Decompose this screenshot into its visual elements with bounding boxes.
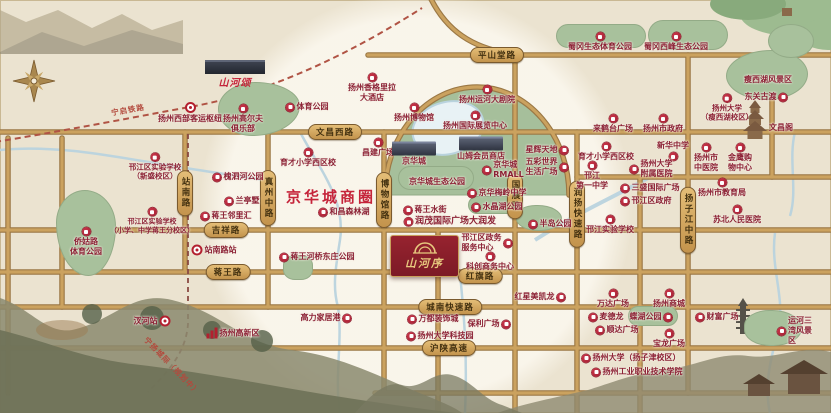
poi-label: 东关古渡 bbox=[745, 92, 777, 102]
metro-station-icon bbox=[160, 316, 171, 327]
poi-item: 昌建广场 bbox=[362, 138, 394, 158]
poi-item: 扬州市 中医院 bbox=[694, 143, 718, 173]
poi-badge-icon bbox=[471, 111, 480, 120]
poi-badge-icon bbox=[529, 220, 538, 229]
poi-badge-icon bbox=[672, 32, 681, 41]
poi-badge-icon bbox=[777, 327, 786, 336]
poi-item: 汊河站 bbox=[134, 316, 171, 327]
poi-label: 蒋王邻里汇 bbox=[212, 211, 252, 221]
poi-badge-icon bbox=[588, 161, 597, 170]
poi-item: 星辉天地 bbox=[526, 145, 569, 155]
poi-item: 蝶湖公园 bbox=[630, 312, 673, 322]
poi-label: 和昌森林湖 bbox=[330, 207, 370, 217]
poi-label: 育才小学西区校 bbox=[578, 152, 634, 162]
poi-badge-icon bbox=[609, 114, 618, 123]
poi-item: 邗江区政务 服务中心 bbox=[462, 233, 513, 253]
poi-badge-icon bbox=[596, 32, 605, 41]
railway-label: 宁启铁路 bbox=[110, 102, 145, 119]
poi-item: 扬州大学科技园 bbox=[407, 331, 474, 341]
sister-project-name: 山河颂 bbox=[203, 74, 267, 89]
poi-label: 汊河站 bbox=[134, 316, 158, 326]
road-label: 平山堂路 bbox=[470, 47, 524, 63]
poi-badge-icon bbox=[630, 165, 639, 174]
poi-item: 保利广场 bbox=[468, 319, 511, 329]
poi-label: 育才小学西区校 bbox=[280, 158, 336, 168]
poi-badge-icon bbox=[502, 320, 511, 329]
poi-item: 水晶湖公园 bbox=[472, 202, 523, 212]
poi-item: 高力家居港 bbox=[301, 313, 352, 323]
poi-badge-icon bbox=[201, 212, 210, 221]
poi-item: 育才小学西区校 bbox=[280, 148, 336, 168]
poi-label: 扬州大学 （瘦西湖校区） bbox=[701, 104, 754, 123]
poi-badge-icon bbox=[582, 354, 591, 363]
poi-badge-icon bbox=[664, 313, 673, 322]
poi-badge-icon bbox=[733, 205, 742, 214]
poi-label: 站南路站 bbox=[205, 245, 237, 255]
poi-badge-icon bbox=[659, 114, 668, 123]
poi-label: 邗江实验学校 bbox=[586, 225, 634, 235]
poi-badge-icon bbox=[472, 203, 481, 212]
poi-item: 邗江区实验学校 （新盛校区） bbox=[129, 153, 182, 182]
road-label-vertical: 博物馆路 bbox=[376, 172, 392, 228]
poi-item: 京华城生态公园 bbox=[409, 177, 465, 187]
poi-badge-icon bbox=[404, 218, 413, 227]
poi-badge-icon bbox=[779, 93, 788, 102]
poi-badge-icon bbox=[213, 173, 222, 182]
metro-station-icon bbox=[185, 102, 196, 113]
poi-label: 京华梅岭中学 bbox=[479, 188, 527, 198]
poi-badge-icon bbox=[410, 103, 419, 112]
poi-badge-icon bbox=[408, 315, 417, 324]
poi-badge-icon bbox=[482, 166, 491, 175]
poi-label: 万都装饰城 bbox=[419, 314, 459, 324]
poi-item: 和昌森林湖 bbox=[319, 207, 370, 217]
poi-label: 邗江 第一中学 bbox=[576, 171, 608, 191]
poi-badge-icon bbox=[148, 207, 157, 216]
poi-label: 蝶湖公园 bbox=[630, 312, 662, 322]
poi-item: 扬州大学 附属医院 bbox=[630, 159, 673, 179]
poi-item: 万达广场 bbox=[597, 289, 629, 309]
poi-item: 蒋王邻里汇 bbox=[201, 211, 252, 221]
poi-label: 运河三湾风景区 bbox=[788, 316, 813, 346]
hightech-zone-icon bbox=[207, 328, 218, 339]
poi-label: 润茂国际广场大润发 bbox=[415, 216, 496, 227]
poi-item: 科创商务中心 bbox=[466, 252, 514, 272]
poi-label: 扬州市 中医院 bbox=[694, 153, 718, 173]
poi-item: 槐泗河公园 bbox=[213, 172, 264, 182]
poi-label: 扬州大学科技园 bbox=[418, 331, 474, 341]
poi-label: 顺达广场 bbox=[607, 325, 639, 335]
poi-label: 体育公园 bbox=[297, 102, 329, 112]
poi-label: 扬州运河大剧院 bbox=[459, 95, 515, 105]
poi-item: 扬州香格里拉 大酒店 bbox=[348, 73, 396, 103]
poi-item: 站南路站 bbox=[192, 245, 237, 256]
poi-badge-icon bbox=[468, 189, 477, 198]
poi-label: 邗江区实验学校 （新盛校区） bbox=[129, 163, 182, 182]
poi-badge-icon bbox=[560, 163, 569, 172]
poi-label: 三盛国际广场 bbox=[632, 183, 680, 193]
road-label: 文昌西路 bbox=[308, 124, 362, 140]
poi-label: 蜀冈生态体育公园 bbox=[568, 42, 632, 52]
poi-badge-icon bbox=[319, 208, 328, 217]
poi-item: 扬州西部客运枢纽 bbox=[158, 102, 222, 124]
project-marker-shanhesong: 山河颂 bbox=[203, 60, 267, 89]
poi-badge-icon bbox=[504, 239, 513, 248]
poi-badge-icon bbox=[404, 206, 413, 215]
poi-item: 京华梅岭中学 bbox=[468, 188, 527, 198]
poi-label: 邗江区政府 bbox=[632, 196, 672, 206]
poi-item: 蒋王河桥东庄公园 bbox=[280, 252, 355, 262]
poi-item: 东关古渡 bbox=[745, 92, 788, 102]
poi-item: 体育公园 bbox=[286, 102, 329, 112]
poi-badge-icon bbox=[343, 314, 352, 323]
poi-badge-icon bbox=[602, 142, 611, 151]
road-label: 吉祥路 bbox=[204, 222, 249, 238]
poi-label: 京华城 bbox=[402, 157, 426, 167]
poi-label: 万达广场 bbox=[597, 299, 629, 309]
project-logo-arch-icon bbox=[412, 241, 438, 254]
poi-label: 保利广场 bbox=[468, 319, 500, 329]
poi-badge-icon bbox=[304, 148, 313, 157]
poi-label: 扬州高尔夫 俱乐部 bbox=[223, 114, 263, 134]
poi-item: 邗江 第一中学 bbox=[576, 161, 608, 191]
poi-item: 苏北人民医院 bbox=[713, 205, 761, 225]
poi-item: 瘦西湖风景区 bbox=[744, 75, 792, 85]
poi-item: 扬州高尔夫 俱乐部 bbox=[223, 104, 263, 134]
poi-label: 扬州工业职业技术学院 bbox=[603, 367, 683, 377]
map-canvas: 平山堂路文昌西路吉祥路蒋王路红旗路城南快速路沪陕高速站南路真州中路博物馆路国展路… bbox=[0, 0, 831, 413]
poi-item: 金鹰购 物中心 bbox=[728, 143, 752, 173]
poi-badge-icon bbox=[368, 73, 377, 82]
business-circle-label: 京华城商圈 bbox=[286, 186, 376, 207]
poi-badge-icon bbox=[483, 85, 492, 94]
poi-label: 财富广场 bbox=[707, 312, 739, 322]
poi-badge-icon bbox=[592, 368, 601, 377]
poi-badge-icon bbox=[736, 143, 745, 152]
poi-badge-icon bbox=[665, 329, 674, 338]
poi-item: 三盛国际广场 bbox=[621, 183, 680, 193]
poi-badge-icon bbox=[621, 184, 630, 193]
poi-item: 蒋王水街 bbox=[404, 205, 447, 215]
poi-item: 扬州工业职业技术学院 bbox=[592, 367, 683, 377]
poi-label: 麦德龙 bbox=[600, 312, 624, 322]
poi-label: 红星美凯龙 bbox=[515, 292, 555, 302]
poi-label: 蒋王河桥东庄公园 bbox=[291, 252, 355, 262]
park-area bbox=[768, 24, 814, 58]
poi-item: 宝龙广场 bbox=[653, 329, 685, 349]
poi-badge-icon bbox=[560, 146, 569, 155]
poi-item: 京华城 RMALL bbox=[482, 160, 524, 180]
poi-label: 半岛公园 bbox=[540, 219, 572, 229]
poi-item: 蜀冈西峰生态公园 bbox=[644, 32, 708, 52]
poi-label: 兰亭墅 bbox=[236, 196, 260, 206]
poi-label: 蜀冈西峰生态公园 bbox=[644, 42, 708, 52]
road-label: 蒋王路 bbox=[206, 264, 251, 280]
poi-badge-icon bbox=[702, 143, 711, 152]
poi-item: 兰亭墅 bbox=[225, 196, 260, 206]
poi-item: 邗江区实验学校 （小学、中学蒋王分校区） bbox=[110, 207, 194, 235]
building-image bbox=[459, 137, 503, 151]
poi-label: 来鹤台广场 bbox=[593, 124, 633, 134]
poi-badge-icon bbox=[609, 289, 618, 298]
poi-label: 高力家居港 bbox=[301, 313, 341, 323]
poi-item: 来鹤台广场 bbox=[593, 114, 633, 134]
map-overlay: 平山堂路文昌西路吉祥路蒋王路红旗路城南快速路沪陕高速站南路真州中路博物馆路国展路… bbox=[0, 0, 831, 413]
poi-badge-icon bbox=[82, 227, 91, 236]
poi-label: 扬州高新区 bbox=[220, 328, 260, 338]
poi-badge-icon bbox=[151, 153, 160, 162]
road-label-vertical: 扬子江中路 bbox=[680, 187, 696, 254]
poi-badge-icon bbox=[665, 289, 674, 298]
poi-label: 扬州博物馆 bbox=[394, 113, 434, 123]
poi-label: 邗江区政务 服务中心 bbox=[462, 233, 502, 253]
poi-label: 文昌阁 bbox=[769, 123, 793, 132]
poi-badge-icon bbox=[589, 313, 598, 322]
poi-item: 侨姑路 体育公园 bbox=[70, 227, 102, 257]
poi-item: 扬州高新区 bbox=[207, 328, 260, 339]
poi-label: 金鹰购 物中心 bbox=[728, 153, 752, 173]
poi-label: 扬州大学 附属医院 bbox=[641, 159, 673, 179]
poi-label: 扬州香格里拉 大酒店 bbox=[348, 83, 396, 103]
poi-label: 扬州商城 bbox=[653, 299, 685, 309]
poi-badge-icon bbox=[596, 326, 605, 335]
poi-item: 文昌阁 bbox=[769, 123, 793, 133]
railway-label: 宁扬城际（规划中） bbox=[141, 335, 202, 398]
poi-badge-icon bbox=[280, 253, 289, 262]
poi-badge-icon bbox=[606, 215, 615, 224]
poi-item: 顺达广场 bbox=[596, 325, 639, 335]
poi-item: 育才小学西区校 bbox=[578, 142, 634, 162]
poi-label: 扬州西部客运枢纽 bbox=[158, 114, 222, 124]
project-marker-shanhexu: 山河序 bbox=[390, 235, 459, 277]
poi-item: 半岛公园 bbox=[529, 219, 572, 229]
poi-label: 扬州大学（扬子津校区） bbox=[593, 353, 681, 363]
poi-item: 扬州博物馆 bbox=[394, 103, 434, 123]
poi-label: 扬州市政府 bbox=[643, 124, 683, 134]
project-name: 山河序 bbox=[405, 255, 444, 271]
poi-label: 五彩世界 生活广场 bbox=[526, 157, 558, 177]
poi-label: 苏北人民医院 bbox=[713, 215, 761, 225]
poi-label: 科创商务中心 bbox=[466, 262, 514, 272]
poi-badge-icon bbox=[723, 94, 732, 103]
poi-badge-icon bbox=[718, 178, 727, 187]
poi-item: 扬州国际展览中心 bbox=[443, 111, 507, 131]
poi-badge-icon bbox=[486, 252, 495, 261]
metro-station-icon bbox=[192, 245, 203, 256]
poi-item: 五彩世界 生活广场 bbox=[526, 157, 569, 177]
poi-item: 扬州大学（扬子津校区） bbox=[582, 353, 681, 363]
poi-item: 扬州市教育局 bbox=[698, 178, 746, 198]
poi-label: 邗江区实验学校 （小学、中学蒋王分校区） bbox=[110, 217, 194, 235]
poi-item: 邗江实验学校 bbox=[586, 215, 634, 235]
poi-label: 京华城生态公园 bbox=[409, 177, 465, 186]
poi-badge-icon bbox=[225, 197, 234, 206]
sister-project-building-image bbox=[205, 60, 265, 74]
poi-label: 蒋王水街 bbox=[415, 205, 447, 215]
building-image bbox=[392, 142, 436, 156]
poi-label: 瘦西湖风景区 bbox=[744, 75, 792, 84]
poi-label: 槐泗河公园 bbox=[224, 172, 264, 182]
poi-item: 京华城 bbox=[392, 142, 436, 167]
poi-item: 润茂国际广场大润发 bbox=[404, 216, 496, 227]
poi-badge-icon bbox=[407, 332, 416, 341]
poi-item: 红星美凯龙 bbox=[515, 292, 566, 302]
poi-label: 扬州市教育局 bbox=[698, 188, 746, 198]
poi-badge-icon bbox=[374, 138, 383, 147]
poi-item: 财富广场 bbox=[696, 312, 739, 322]
poi-item: 扬州运河大剧院 bbox=[459, 85, 515, 105]
poi-badge-icon bbox=[239, 104, 248, 113]
poi-item: 扬州商城 bbox=[653, 289, 685, 309]
poi-label: 星辉天地 bbox=[526, 145, 558, 155]
poi-label: 宝龙广场 bbox=[653, 339, 685, 349]
poi-item: 邗江区政府 bbox=[621, 196, 672, 206]
poi-label: 侨姑路 体育公园 bbox=[70, 237, 102, 257]
poi-badge-icon bbox=[696, 313, 705, 322]
poi-item: 万都装饰城 bbox=[408, 314, 459, 324]
poi-item: 麦德龙 bbox=[589, 312, 624, 322]
poi-badge-icon bbox=[286, 103, 295, 112]
poi-label: 京华城 RMALL bbox=[493, 160, 524, 180]
poi-item: 扬州市政府 bbox=[643, 114, 683, 134]
poi-item: 新华中学 bbox=[657, 141, 689, 161]
road-label: 城南快速路 bbox=[418, 299, 482, 315]
poi-badge-icon bbox=[557, 293, 566, 302]
poi-item: 山姆会员商店 bbox=[457, 137, 505, 162]
poi-item: 蜀冈生态体育公园 bbox=[568, 32, 632, 52]
poi-item: 运河三湾风景区 bbox=[777, 316, 813, 346]
road-label: 沪陕高速 bbox=[422, 340, 476, 356]
poi-label: 扬州国际展览中心 bbox=[443, 121, 507, 131]
poi-badge-icon bbox=[621, 197, 630, 206]
poi-label: 新华中学 bbox=[657, 141, 689, 151]
poi-label: 昌建广场 bbox=[362, 148, 394, 158]
poi-label: 水晶湖公园 bbox=[483, 202, 523, 212]
